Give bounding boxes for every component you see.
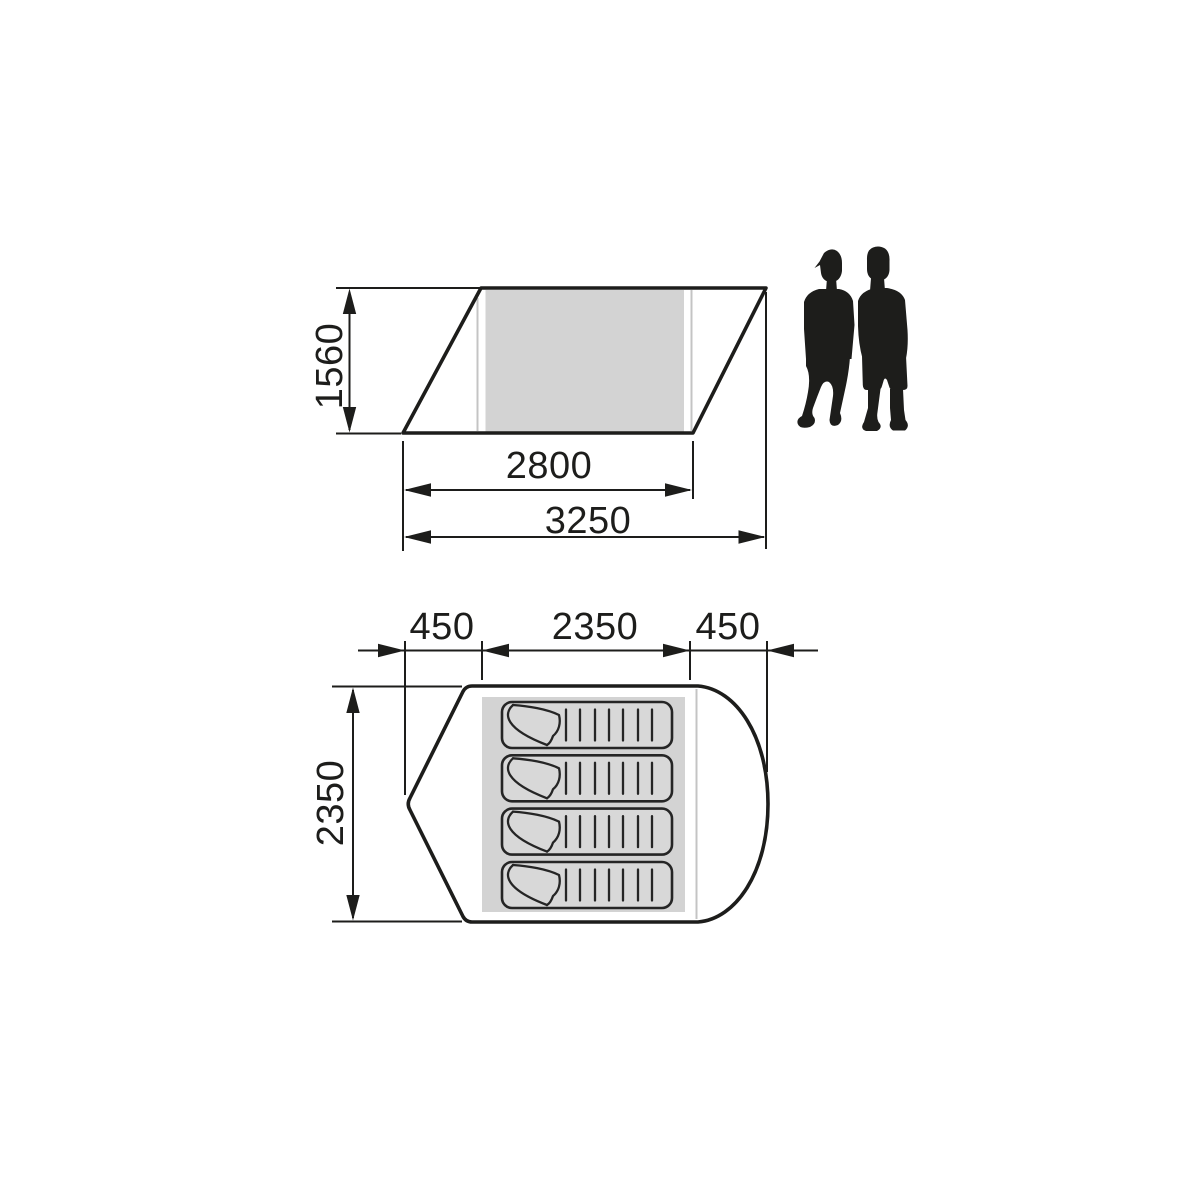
arrowhead-down [343, 407, 356, 433]
dimension-side-height: 1560 [309, 288, 481, 434]
arrowhead-left [404, 483, 431, 497]
dim-label-plan-right-porch: 450 [696, 606, 761, 648]
arrowhead-right [663, 644, 690, 658]
arrowhead-up [346, 688, 359, 714]
arrowhead-right [378, 644, 405, 658]
dim-label-plan-inner-width: 2350 [552, 606, 639, 648]
side-view: 1560 2800 3250 [309, 288, 766, 551]
sleeping-mat-4 [502, 862, 672, 908]
floor-plan: 450 2350 450 2350 [310, 606, 818, 922]
tent-dimension-drawing: 1560 2800 3250 [0, 0, 1200, 1200]
arrowhead-left [767, 644, 794, 658]
sleeping-mat-1 [502, 702, 672, 748]
dimension-plan-depth: 2350 [310, 687, 462, 922]
arrowhead-left [404, 530, 431, 544]
scale-figures [797, 246, 907, 431]
sleeping-mat-2 [502, 755, 672, 801]
dim-label-plan-left-porch: 450 [410, 606, 475, 648]
arrowhead-left [482, 644, 509, 658]
arrowhead-right [665, 483, 692, 497]
side-view-inner-area [486, 290, 685, 432]
tent-dimensions-page: 1560 2800 3250 [0, 0, 1200, 1200]
arrowhead-down [346, 895, 359, 921]
dim-label-side-inner-width: 2800 [506, 445, 593, 487]
dim-label-plan-depth: 2350 [310, 760, 352, 847]
arrowhead-right [739, 530, 766, 544]
sleeping-mat-3 [502, 809, 672, 855]
scale-figure-man [858, 246, 908, 431]
dim-label-side-total-width: 3250 [545, 500, 632, 542]
arrowhead-up [343, 289, 356, 315]
scale-figure-woman [797, 249, 854, 427]
dim-label-side-height: 1560 [309, 323, 351, 410]
